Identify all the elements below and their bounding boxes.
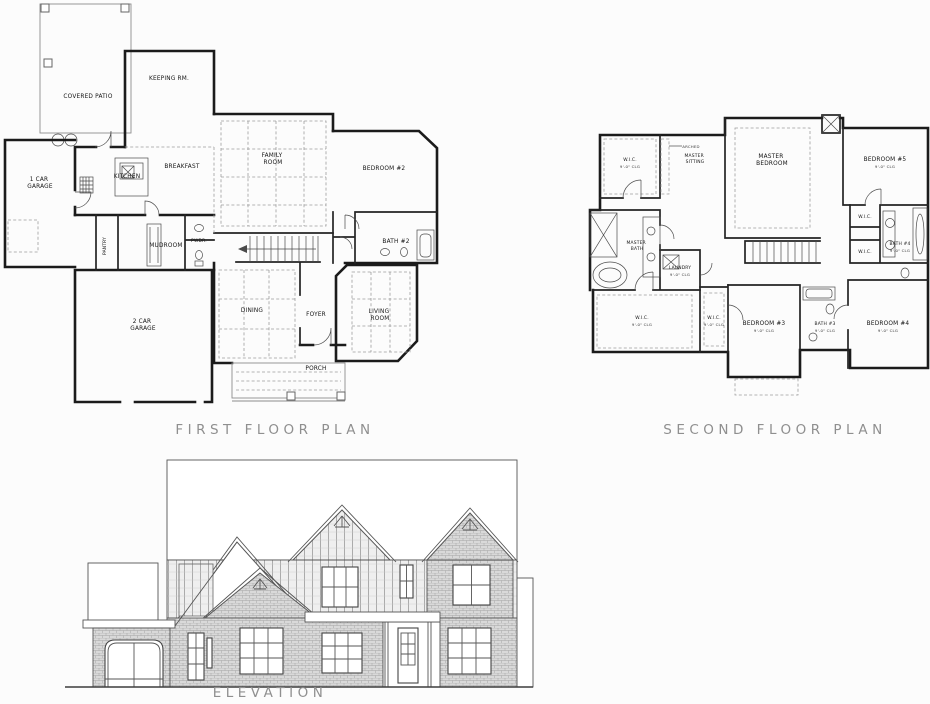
room-label-master-bath: MASTER BATH	[627, 240, 648, 252]
note-arched: ARCHED	[682, 144, 699, 149]
master-bedroom-tray-ceiling	[735, 128, 810, 228]
master-bath-fixtures	[590, 213, 660, 288]
room-label-foyer: FOYER	[306, 312, 326, 318]
room-label-wic-r1: W.I.C.	[858, 214, 872, 220]
room-label-1car-garage: 1 CAR GARAGE	[27, 177, 53, 190]
room-label-bedroom4: BEDROOM #4	[867, 321, 910, 327]
clg-note: 9'-0" CLG	[878, 328, 898, 333]
room-label-living-room: LIVING ROOM	[369, 309, 392, 322]
clg-note: 9'-0" CLG	[875, 164, 895, 169]
covered-patio-outline	[40, 4, 131, 146]
room-label-wic-tl: W.I.C.	[623, 157, 637, 163]
room-label-powder: PWDR.	[191, 238, 207, 244]
upper-stairs	[745, 241, 820, 263]
room-label-dining: DINING	[241, 308, 264, 314]
room-label-mudroom: MUDROOM	[149, 243, 182, 249]
first-floor-exterior-walls	[5, 51, 437, 402]
recessed-bay	[400, 565, 413, 598]
garage-storage-dashed	[8, 220, 38, 252]
room-label-wic-bl: W.I.C.	[635, 315, 649, 321]
room-label-wic-c: W.I.C.	[707, 315, 721, 321]
room-label-kitchen: KITCHEN	[114, 174, 141, 180]
clg-note: 9'-0" CLG	[704, 322, 724, 327]
porch	[232, 363, 345, 401]
room-label-master-sitting: MASTER SITTING	[685, 153, 706, 165]
plan-sheet: COVERED PATIO KEEPING RM. 1 CAR GARAGE K…	[0, 0, 930, 704]
clg-note: 9'-0" CLG	[815, 328, 835, 333]
second-floor-caption: SECOND FLOOR PLAN	[650, 422, 900, 438]
room-label-bath2: BATH #2	[382, 239, 409, 245]
elevation-caption: ELEVATION	[145, 685, 395, 701]
clg-note: 9'-0" CLG	[670, 272, 690, 277]
front-door	[398, 628, 418, 683]
room-label-bath4: BATH #4	[890, 241, 911, 247]
chimney-chase-hatch	[80, 177, 93, 193]
room-label-bedroom5: BEDROOM #5	[864, 157, 907, 163]
room-label-2car-garage: 2 CAR GARAGE	[130, 319, 156, 332]
room-label-wic-r2: W.I.C.	[858, 249, 872, 255]
room-label-keeping-rm: KEEPING RM.	[149, 76, 189, 82]
second-floor-plan: ARCHED W.I.C. 9'-0" CLG MASTER SITTING M…	[585, 105, 930, 405]
room-label-master-bedroom: MASTER BEDROOM	[756, 154, 788, 167]
window-upper-center	[322, 567, 358, 607]
bath2-fixtures	[381, 230, 435, 260]
dining-ceiling-grid	[219, 270, 295, 358]
room-label-family-room: FAMILY ROOM	[262, 153, 285, 166]
clg-note: 9'-0" CLG	[754, 328, 774, 333]
stairs	[238, 236, 318, 262]
clg-note: 9'-0" CLG	[620, 164, 640, 169]
room-label-covered-patio: COVERED PATIO	[63, 94, 112, 100]
stair-direction-arrow	[238, 245, 247, 253]
elevation-drawing	[55, 448, 535, 693]
arched-opening-note: ARCHED	[669, 144, 700, 149]
room-label-pantry: PANTRY	[102, 237, 108, 255]
second-floor-room-labels: W.I.C. 9'-0" CLG MASTER SITTING MASTER B…	[620, 153, 911, 333]
clg-note: 9'-0" CLG	[632, 322, 652, 327]
garage-door	[105, 640, 163, 687]
window-right-3x3	[448, 628, 491, 674]
room-label-porch: PORCH	[305, 366, 326, 372]
room-label-breakfast: BREAKFAST	[164, 164, 199, 170]
room-label-bedroom3: BEDROOM #3	[743, 321, 786, 327]
window-upper-right	[453, 565, 490, 605]
powder-fixtures	[195, 225, 204, 267]
clg-note: 9'-0" CLG	[890, 248, 910, 253]
window-left-3x3	[240, 628, 283, 674]
first-floor-caption: FIRST FLOOR PLAN	[150, 422, 400, 438]
family-room-ceiling-grid	[221, 121, 326, 226]
room-label-laundry: LAUNDRY	[669, 265, 691, 271]
window-center-3x3	[322, 633, 362, 673]
wic-shelving-dashed	[597, 139, 798, 395]
room-label-bedroom2: BEDROOM #2	[363, 166, 406, 172]
room-label-bath3: BATH #3	[815, 321, 836, 327]
keeping-room-opening	[125, 147, 214, 233]
first-floor-plan: COVERED PATIO KEEPING RM. 1 CAR GARAGE K…	[0, 0, 455, 420]
